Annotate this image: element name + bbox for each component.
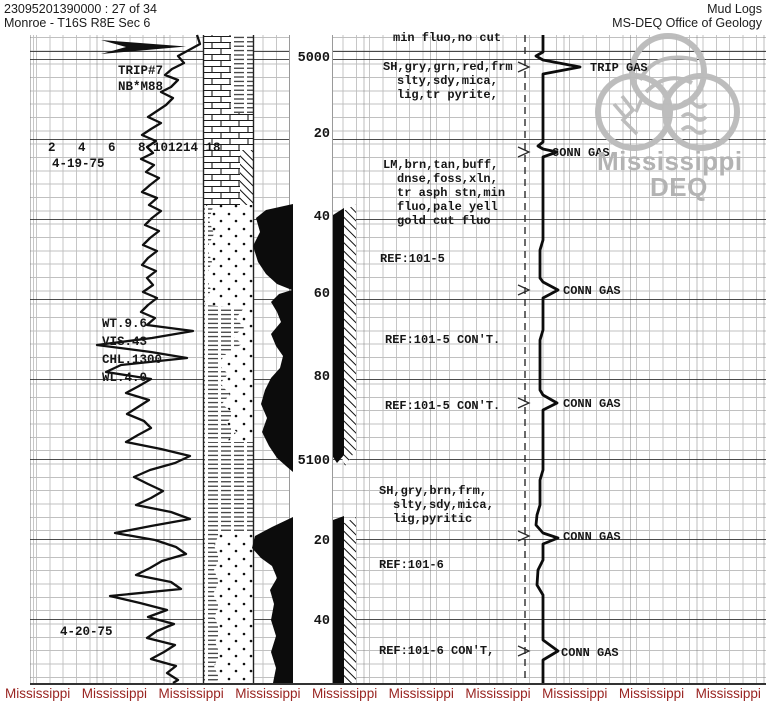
watermark-word: Mississippi [312,686,377,701]
depth-label: 40 [284,210,330,225]
watermark-word: Mississippi [158,686,223,701]
gas-show-label: CONN GAS [563,530,621,544]
gas-show-label: CONN GAS [561,646,619,660]
depth-label: 60 [284,287,330,302]
reference-note: REF:101-6 [379,558,444,572]
depth-label: 40 [284,614,330,629]
desc-line: slty,sdy,mica, [393,498,494,512]
depth-label: 80 [284,370,330,385]
offscale-arrow-icon [101,40,186,54]
depth-label: 5100 [284,454,330,469]
desc-line: tr asph stn,min [397,186,505,200]
mud-chlorides: CHL.1300 [102,353,162,367]
mud-weight: WT.9.6 [102,317,147,331]
watermark-word: Mississippi [389,686,454,701]
trip-note-line1: TRIP#7 [118,64,163,78]
mud-waterloss: WL.4.0 [102,371,147,385]
date-label-top: 4-19-75 [52,157,105,171]
mud-viscosity: VIS.43 [102,335,147,349]
lithology-column [203,35,254,683]
desc-line: SH,gry,grn,red,frm [383,60,513,74]
desc-line: LM,brn,tan,buff, [383,158,498,172]
desc-line: lig,tr pyrite, [397,88,498,102]
reference-note: REF:101-6 CON'T, [379,644,494,658]
rop-scale-row: 2 4 6 8 101214 18 [48,141,221,155]
watermark-word: Mississippi [619,686,684,701]
depth-label: 5000 [284,51,330,66]
desc-line: fluo,pale yell [397,200,498,214]
desc-line: SH,gry,brn,frm, [379,484,487,498]
gas-curve [536,35,580,683]
show-column [252,204,293,683]
date-label-bottom: 4-20-75 [60,625,113,639]
watermark-word: Mississippi [696,686,761,701]
desc-line: lig,pyritic [393,512,472,526]
watermark-word: Mississippi [82,686,147,701]
lag-dashed-line [518,35,529,683]
desc-line: slty,sdy,mica, [397,74,498,88]
mudlog-scan-page: { "header": { "doc_id": "23095201390000 … [0,0,766,705]
watermark-word: Mississippi [5,686,70,701]
watermark-word: Mississippi [235,686,300,701]
gas-show-label: CONN GAS [563,284,621,298]
desc-line: dnse,foss,xln, [397,172,498,186]
depth-label: 20 [284,534,330,549]
deq-watermark-line2: DEQ [650,172,708,203]
reference-note: REF:101-5 [380,252,445,266]
gas-show-label: CONN GAS [563,397,621,411]
desc-line: min fluo,no cut [393,31,501,45]
reference-note: REF:101-5 CON'T. [385,399,500,413]
depth-label: 20 [284,127,330,142]
casing-column [333,204,356,683]
reference-note: REF:101-5 CON'T. [385,333,500,347]
desc-line: gold cut fluo [397,214,491,228]
trip-note-line2: NB*M88 [118,80,163,94]
watermark-word: Mississippi [542,686,607,701]
bottom-watermark-row: Mississippi Mississippi Mississippi Miss… [0,686,766,701]
deq-logo-icon [598,36,737,148]
watermark-word: Mississippi [465,686,530,701]
gas-show-label: TRIP GAS [590,61,648,75]
